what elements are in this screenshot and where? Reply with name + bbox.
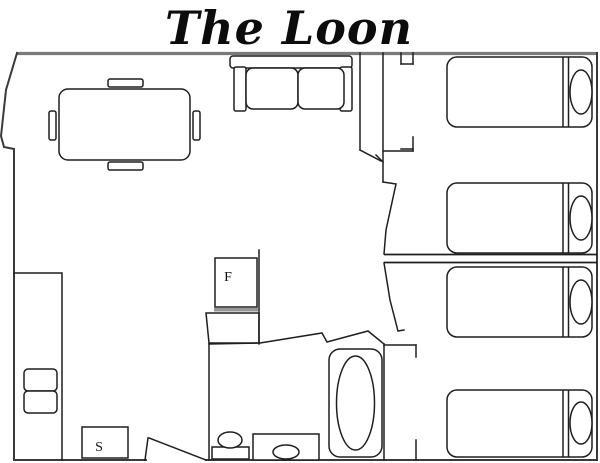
- fridge-label: F: [224, 270, 232, 285]
- left-wall: [1, 53, 17, 460]
- sofa-group: [230, 56, 352, 111]
- bathtub-basin: [337, 356, 375, 450]
- bathroom-group: [212, 349, 382, 460]
- entry-door-leaf: [149, 438, 206, 460]
- fridge-shadow: [214, 308, 258, 312]
- kitchen-counter: [206, 313, 259, 343]
- stove-label: S: [95, 440, 103, 455]
- bedroom-beds-group: [447, 57, 592, 457]
- stove: [82, 427, 128, 458]
- hall-wall-wobble-lower: [384, 263, 404, 331]
- pillow-icon: [570, 402, 592, 444]
- pillow-icon: [570, 280, 592, 324]
- sofa-arm-left: [234, 67, 246, 111]
- bathroom-north-wall: [209, 331, 384, 344]
- bed-4: [447, 390, 592, 457]
- bed-3: [447, 267, 592, 337]
- kitchen-group: F S: [24, 258, 258, 458]
- bed-1: [447, 57, 592, 127]
- dining-table: [59, 89, 190, 160]
- sink-basin-bottom: [24, 391, 57, 413]
- chair-right: [193, 111, 200, 140]
- hall-wall-wobble-upper: [383, 182, 396, 254]
- entry-door-jamb: [145, 438, 148, 460]
- pillow-icon: [570, 70, 592, 114]
- toilet-bowl: [218, 432, 242, 448]
- chair-bottom: [108, 162, 143, 170]
- toilet-tank: [212, 447, 249, 459]
- vanity-sink: [273, 445, 299, 459]
- plan-title: The Loon: [165, 1, 413, 55]
- chair-top: [108, 79, 143, 87]
- kitchen-counter-wall: [14, 273, 62, 460]
- pillow-icon: [570, 196, 592, 240]
- floor-plan-page: The Loon: [0, 0, 600, 463]
- fridge: [215, 258, 257, 307]
- floor-plan-drawing: The Loon: [0, 0, 600, 463]
- closet-angled-wall: [360, 150, 381, 161]
- chair-left: [49, 111, 56, 140]
- sofa-cushion-left: [246, 68, 298, 109]
- sofa-cushion-right: [298, 68, 344, 109]
- bed-2: [447, 183, 592, 253]
- sofa-back: [230, 56, 352, 68]
- dining-table-group: [49, 79, 200, 170]
- sink-basin-top: [24, 369, 57, 391]
